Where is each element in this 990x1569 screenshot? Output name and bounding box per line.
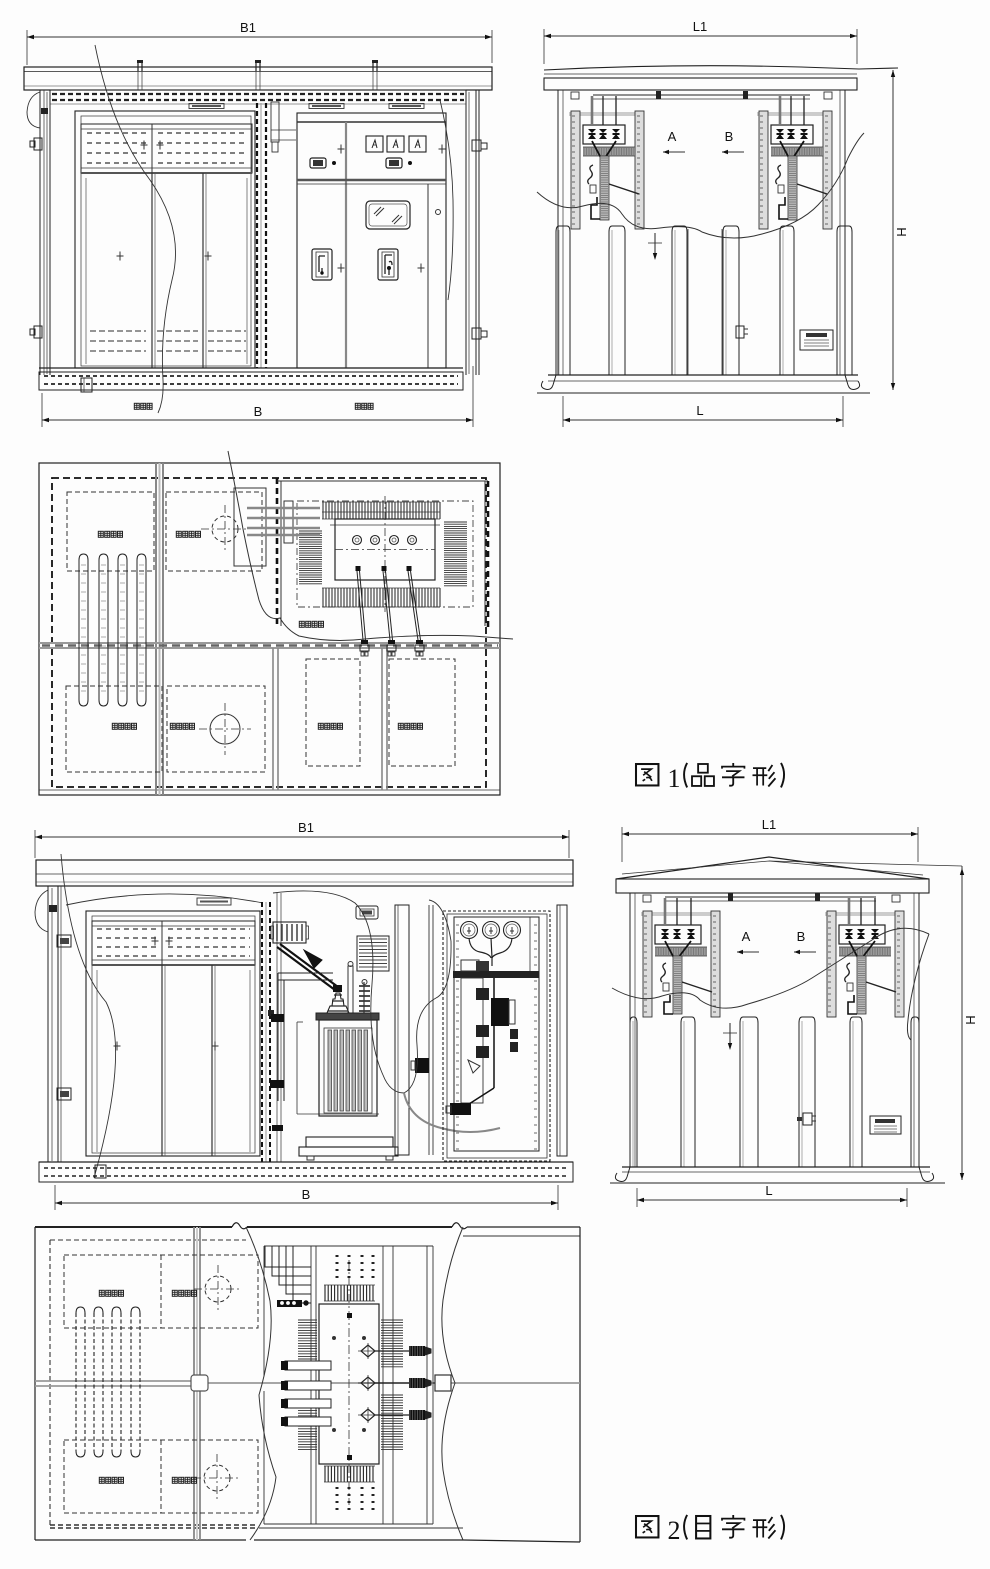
svg-text:B: B [725, 129, 734, 144]
svg-text:L1: L1 [693, 19, 707, 34]
svg-text:L1: L1 [762, 817, 776, 832]
svg-text:1: 1 [668, 764, 681, 793]
svg-text:B: B [254, 404, 263, 419]
svg-text:B1: B1 [298, 820, 314, 835]
svg-text:B: B [797, 929, 806, 944]
svg-text:H: H [894, 227, 909, 236]
svg-text:H: H [963, 1015, 978, 1024]
svg-text:L: L [696, 403, 703, 418]
svg-text:A: A [668, 129, 677, 144]
svg-text:L: L [765, 1183, 772, 1198]
svg-text:B: B [302, 1187, 311, 1202]
svg-text:A: A [742, 929, 751, 944]
svg-text:B1: B1 [240, 20, 256, 35]
svg-text:2: 2 [668, 1516, 681, 1545]
